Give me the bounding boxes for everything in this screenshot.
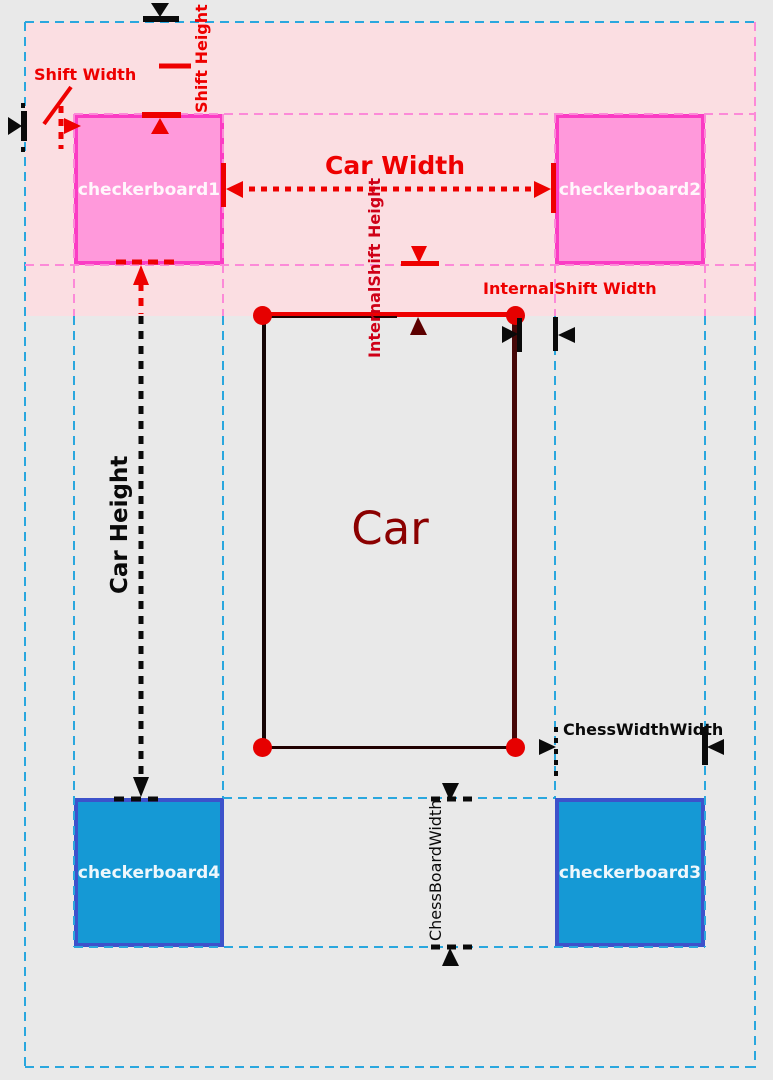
frame-bottom-dashed-line [25, 1066, 756, 1068]
guide-v-cb1-right-pink [222, 114, 224, 316]
guide-h-checkerboard-bottom-cyan [74, 946, 705, 948]
guide-v-cb1-left-pink [73, 114, 75, 316]
shift-width-label: Shift Width [34, 66, 136, 84]
car-width-label: Car Width [325, 152, 455, 181]
checkerboard2: checkerboard2 [555, 114, 705, 265]
frame-right-pink-dashed-line [754, 22, 756, 316]
car-corner-dot-top-right [506, 306, 525, 325]
guide-v-right-column-cyan [704, 316, 706, 947]
car-height-label: Car Height [107, 456, 133, 594]
guide-h-checkerboard-top-pink [74, 113, 756, 115]
chesswidthwidth-label: ChessWidthWidth [563, 721, 723, 739]
internalshift-height-label: InternalShift Height [366, 178, 384, 358]
checkerboard4-label: checkerboard4 [78, 863, 220, 883]
car-corner-dot-bottom-left [253, 738, 272, 757]
car-label: Car [330, 503, 450, 555]
car-height-bottom-arrow-icon [133, 777, 149, 797]
guide-h-checkerboard-bottom-pink [25, 264, 756, 266]
shift-height-label: Shift Height [193, 4, 211, 113]
checkerboard3-label: checkerboard3 [559, 863, 701, 883]
frame-left-dashed-line [24, 22, 26, 1068]
left-datum-arrow-icon [8, 117, 22, 135]
internalshift-width-label: InternalShift Width [483, 280, 657, 298]
chessboardwidth-bottom-arrow-icon [442, 948, 459, 966]
internalshift-height-bottom-arrow-icon [410, 317, 427, 335]
frame-right-dashed-line [754, 316, 756, 1068]
checkerboard1-label: checkerboard1 [78, 180, 220, 200]
car-corner-dot-top-left [253, 306, 272, 325]
frame-top-dashed-line [25, 21, 756, 23]
checkerboard2-label: checkerboard2 [559, 180, 701, 200]
car-left-edge [262, 313, 266, 749]
top-datum-arrow-icon [151, 3, 169, 17]
guide-h-checkerboard-top-cyan [223, 797, 555, 799]
car-bottom-edge [263, 746, 516, 749]
guide-v-left-column-cyan [73, 316, 75, 947]
car-right-edge [512, 313, 517, 749]
calibration-diagram: checkerboard1 checkerboard2 checkerboard… [0, 0, 773, 1080]
guide-v-left-inner-cyan [222, 316, 224, 798]
chesswidthwidth-right-arrow-icon [707, 739, 724, 755]
checkerboard3: checkerboard3 [555, 798, 705, 947]
guide-v-right-inner-cyan [554, 316, 556, 798]
checkerboard1: checkerboard1 [74, 114, 224, 265]
internalshift-width-right-arrow-icon [558, 327, 575, 343]
checkerboard4: checkerboard4 [74, 798, 224, 947]
chessboardwidth-label: ChessBoardWidth [427, 800, 445, 941]
guide-v-cb2-right-pink [704, 114, 706, 316]
car-corner-dot-bottom-right [506, 738, 525, 757]
